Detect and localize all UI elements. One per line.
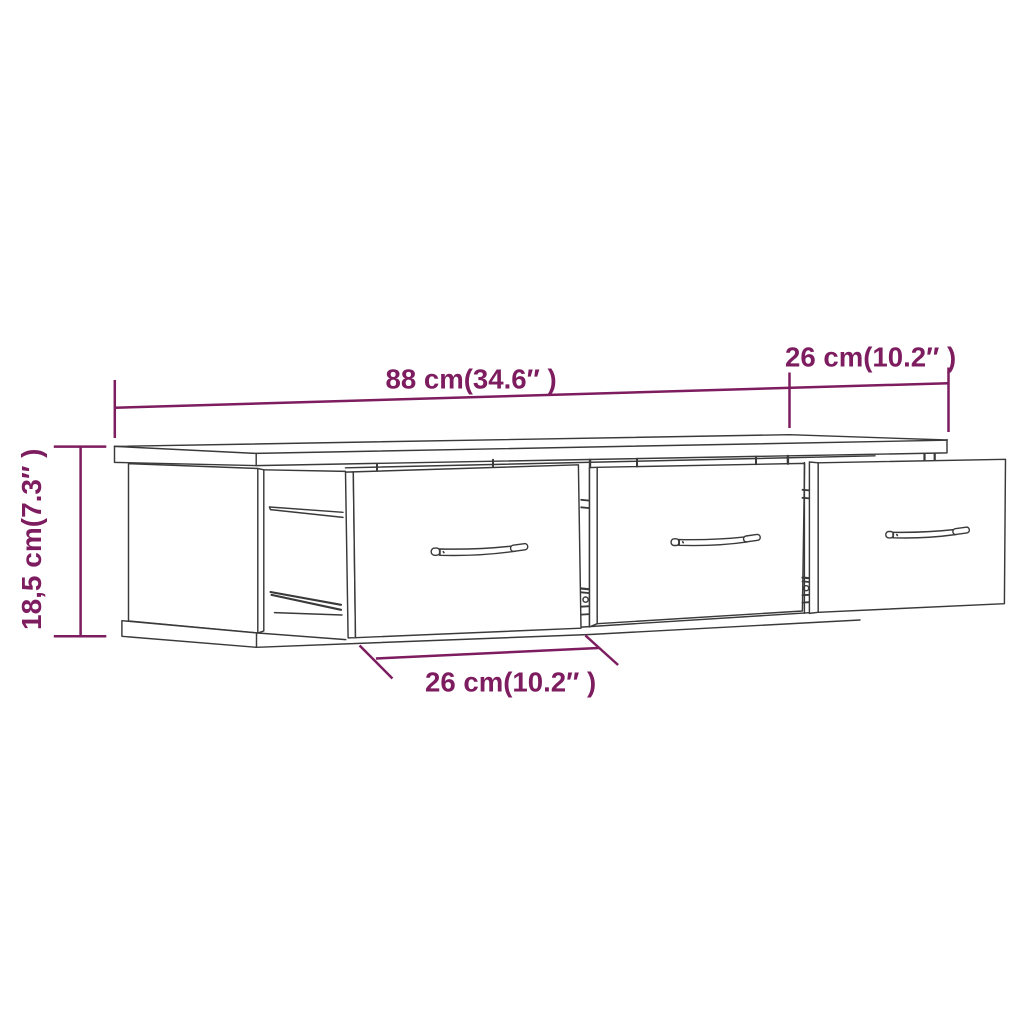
svg-text:26 cm(10.2″ ): 26 cm(10.2″ ) bbox=[785, 342, 956, 373]
svg-text:88 cm(34.6″ ): 88 cm(34.6″ ) bbox=[386, 364, 557, 395]
svg-text:18,5 cm(7.3″ ): 18,5 cm(7.3″ ) bbox=[16, 448, 47, 630]
svg-text:26 cm(10.2″ ): 26 cm(10.2″ ) bbox=[425, 667, 596, 698]
